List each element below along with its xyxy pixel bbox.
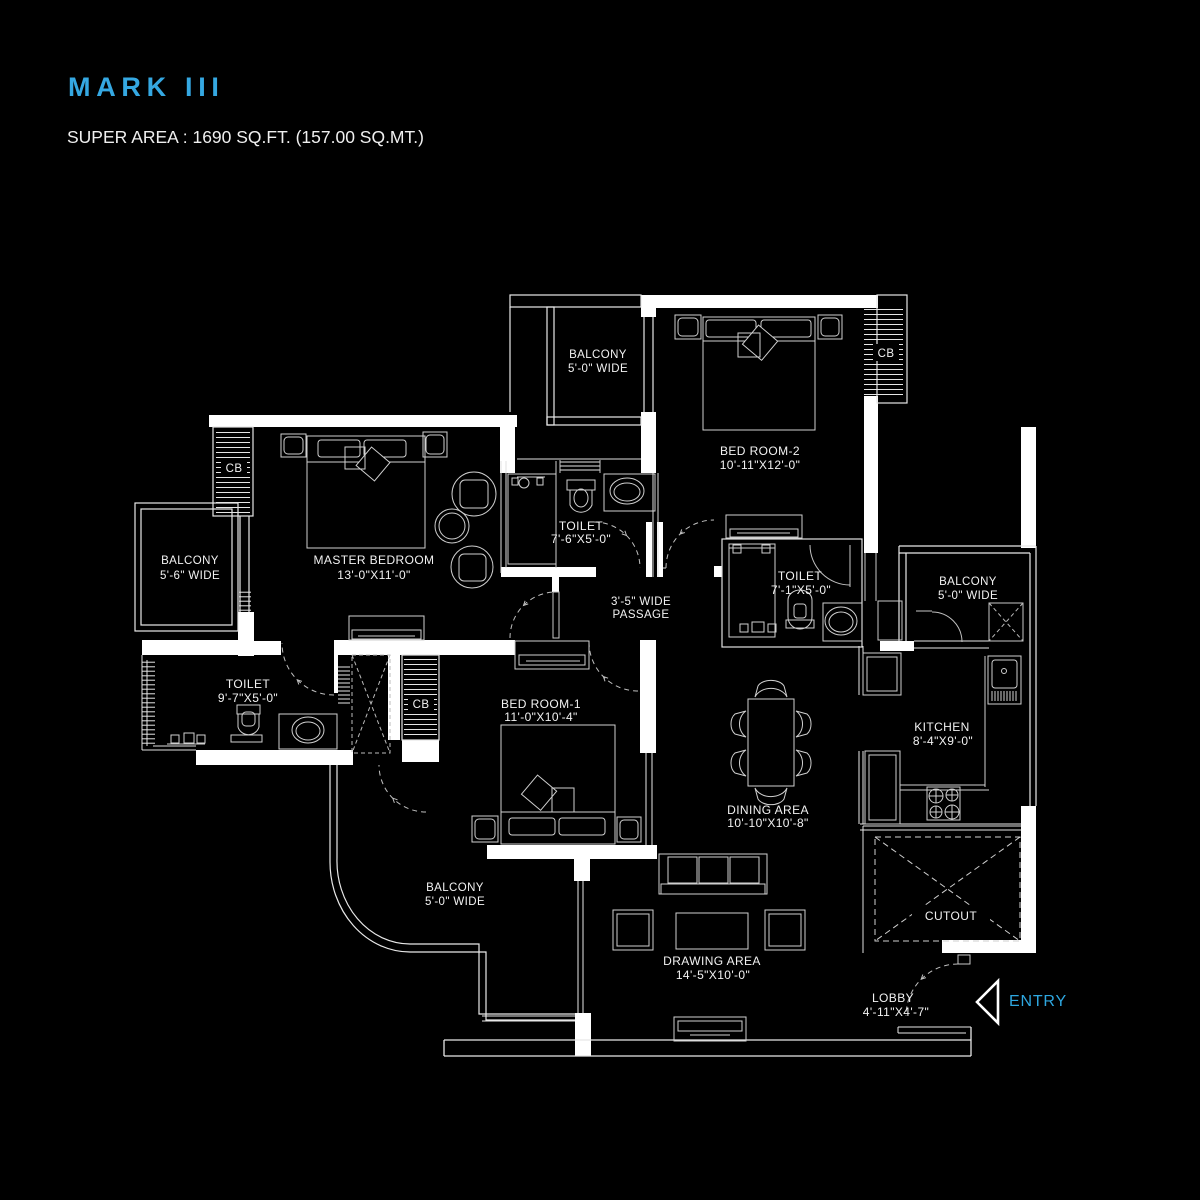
svg-text:BALCONY: BALCONY: [426, 882, 484, 894]
svg-text:7'-1"X5'-0": 7'-1"X5'-0": [771, 583, 831, 597]
svg-text:TOILET: TOILET: [226, 677, 270, 691]
svg-text:TOILET: TOILET: [778, 569, 822, 583]
svg-text:8'-4"X9'-0": 8'-4"X9'-0": [913, 734, 973, 748]
svg-text:7'-6"X5'-0": 7'-6"X5'-0": [551, 532, 611, 546]
svg-text:DRAWING AREA: DRAWING AREA: [663, 954, 761, 968]
svg-text:10'-11"X12'-0": 10'-11"X12'-0": [720, 458, 801, 472]
svg-text:13'-0"X11'-0": 13'-0"X11'-0": [337, 568, 410, 582]
svg-text:9'-7"X5'-0": 9'-7"X5'-0": [218, 691, 278, 705]
svg-text:5'-6" WIDE: 5'-6" WIDE: [160, 570, 220, 582]
svg-text:5'-0" WIDE: 5'-0" WIDE: [938, 590, 998, 602]
svg-text:KITCHEN: KITCHEN: [914, 720, 969, 734]
svg-text:CB: CB: [878, 348, 895, 360]
svg-text:TOILET: TOILET: [559, 519, 603, 533]
svg-text:PASSAGE: PASSAGE: [613, 609, 670, 621]
svg-text:4'-11"X4'-7": 4'-11"X4'-7": [863, 1005, 929, 1019]
svg-text:SUPER AREA : 1690 SQ.FT. (157.: SUPER AREA : 1690 SQ.FT. (157.00 SQ.MT.): [67, 127, 424, 147]
svg-text:BALCONY: BALCONY: [939, 576, 997, 588]
svg-text:14'-5"X10'-0": 14'-5"X10'-0": [676, 968, 750, 982]
svg-text:LOBBY: LOBBY: [872, 991, 914, 1005]
svg-text:5'-0" WIDE: 5'-0" WIDE: [568, 363, 628, 375]
svg-text:BALCONY: BALCONY: [569, 349, 627, 361]
svg-text:CB: CB: [226, 463, 243, 475]
svg-text:5'-0" WIDE: 5'-0" WIDE: [425, 896, 485, 908]
svg-text:11'-0"X10'-4": 11'-0"X10'-4": [504, 710, 577, 724]
svg-text:ENTRY: ENTRY: [1009, 993, 1067, 1010]
svg-text:BED ROOM-1: BED ROOM-1: [501, 697, 581, 711]
svg-text:MARK III: MARK III: [68, 72, 225, 102]
svg-text:10'-10"X10'-8": 10'-10"X10'-8": [727, 816, 808, 830]
svg-text:CUTOUT: CUTOUT: [925, 909, 977, 923]
svg-text:DINING AREA: DINING AREA: [727, 803, 809, 817]
svg-text:MASTER BEDROOM: MASTER BEDROOM: [314, 553, 435, 567]
svg-text:BED ROOM-2: BED ROOM-2: [720, 444, 800, 458]
svg-text:3'-5" WIDE: 3'-5" WIDE: [611, 596, 671, 608]
svg-text:CB: CB: [413, 699, 430, 711]
svg-text:BALCONY: BALCONY: [161, 555, 219, 567]
